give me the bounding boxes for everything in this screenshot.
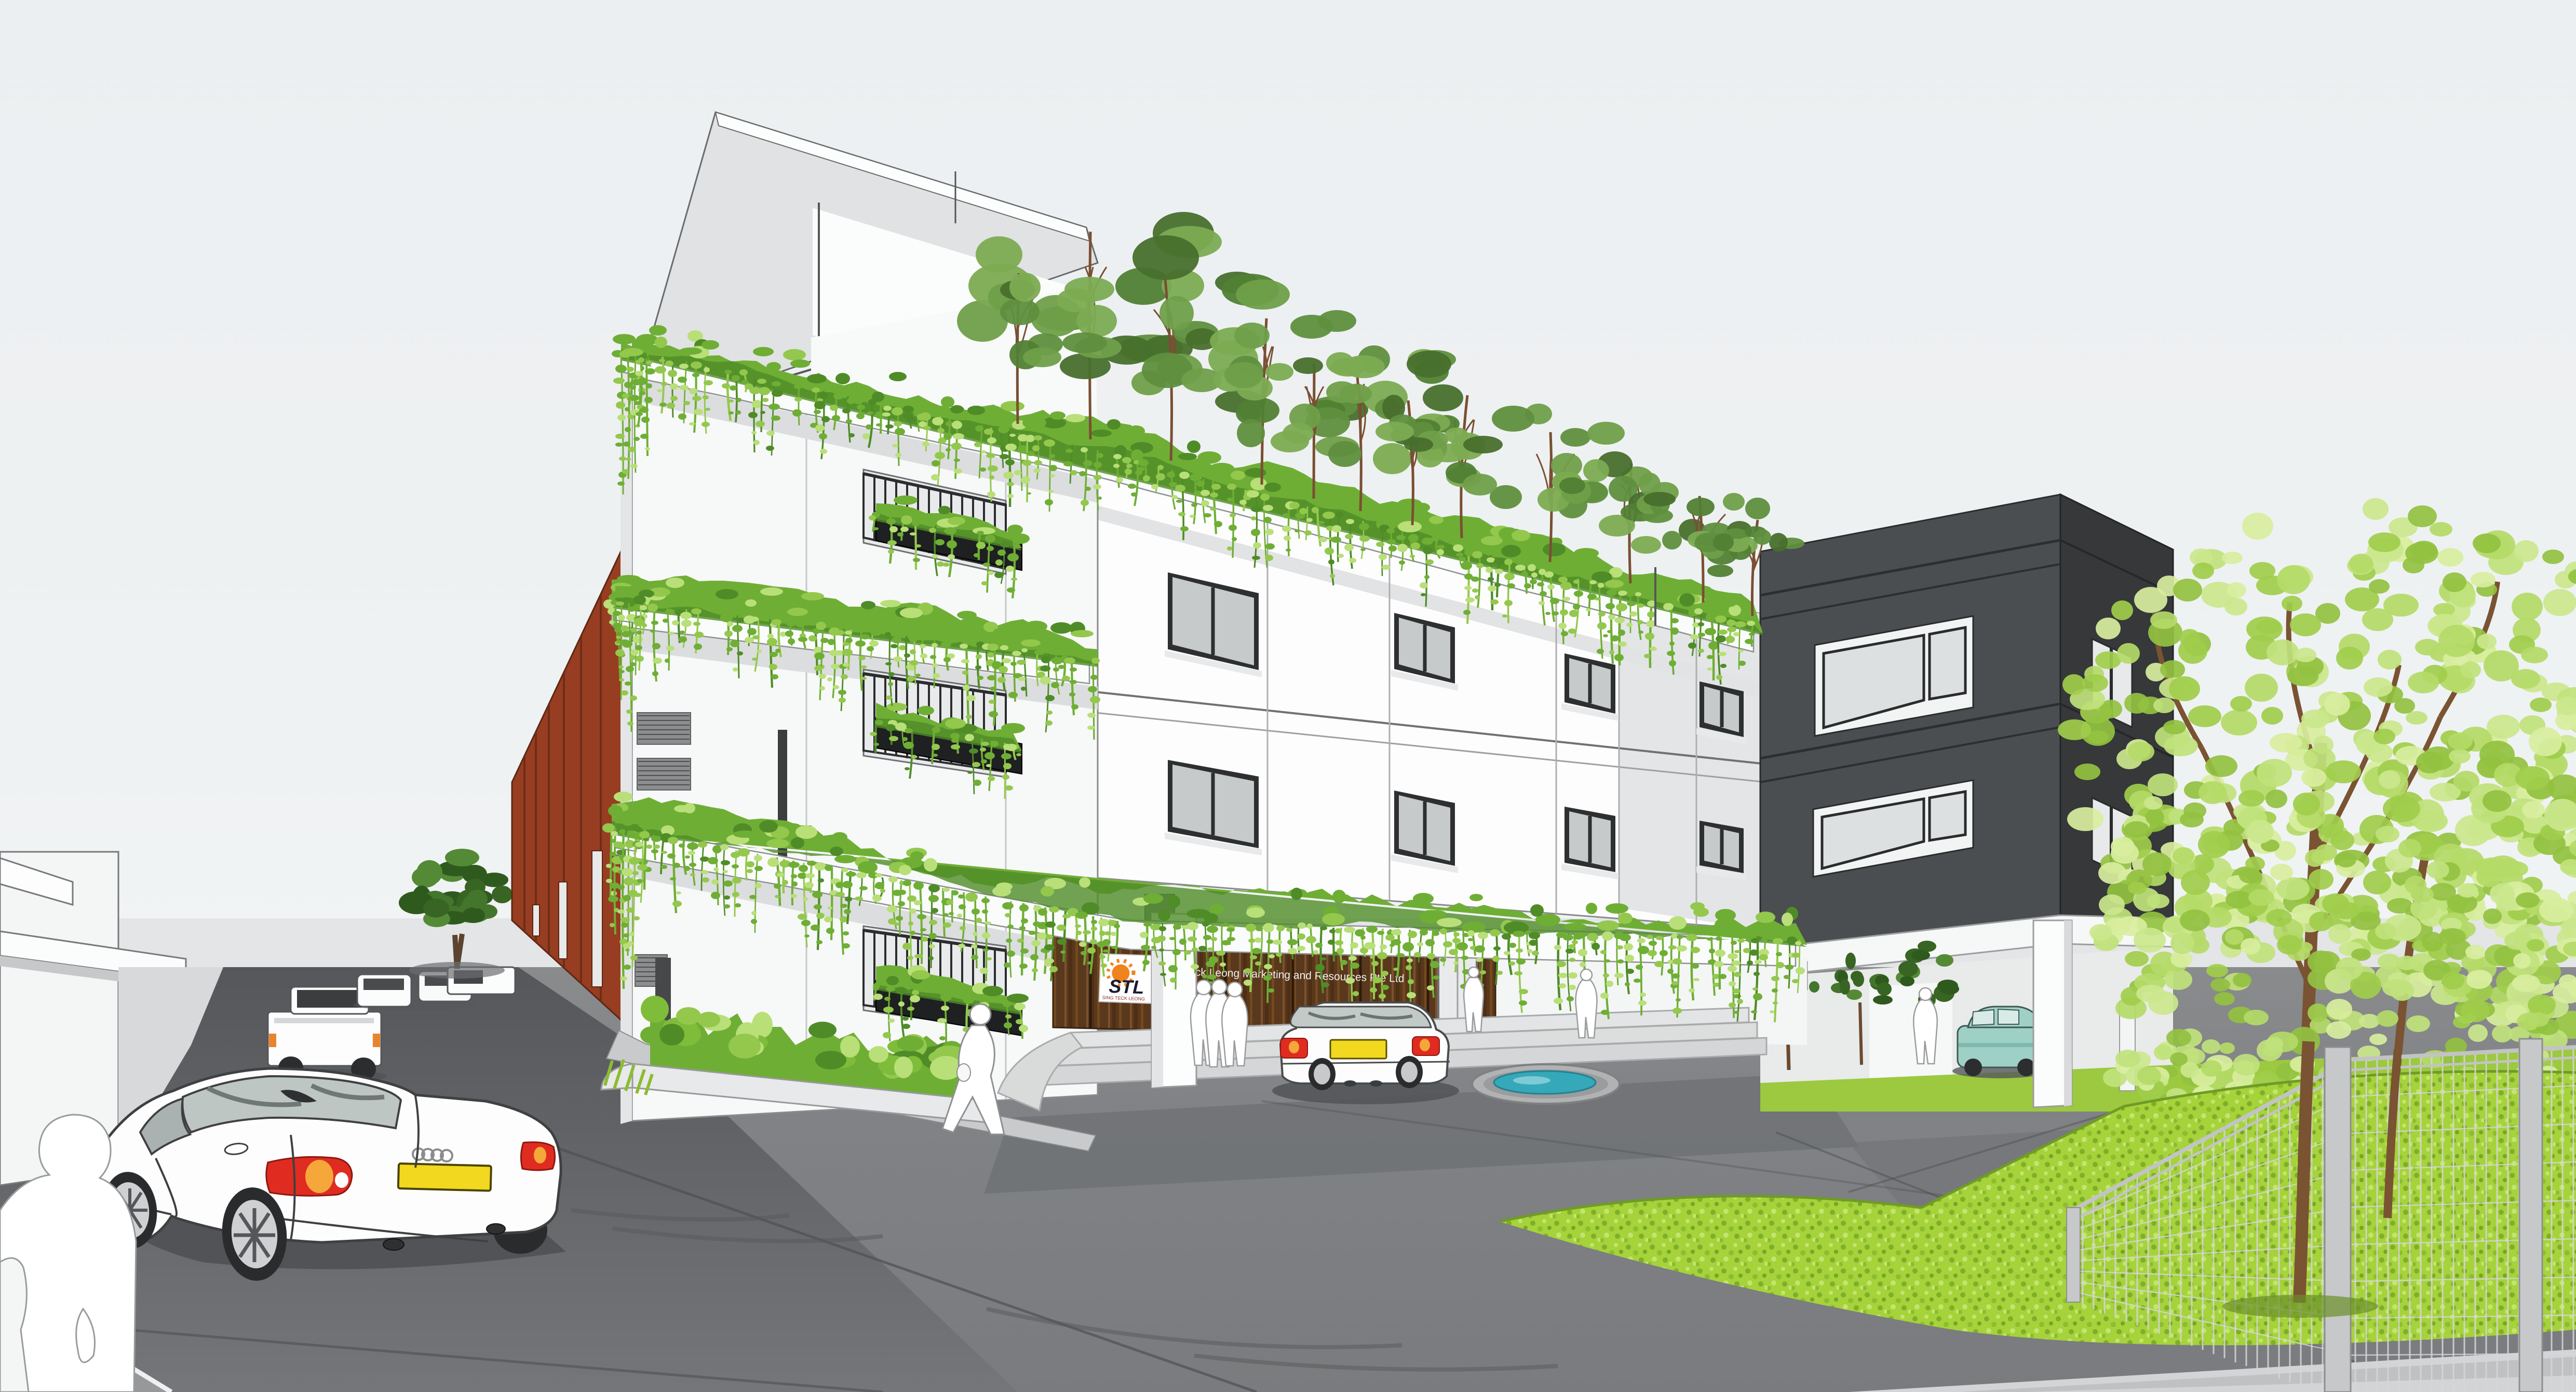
svg-text:STL: STL [1109,975,1144,998]
